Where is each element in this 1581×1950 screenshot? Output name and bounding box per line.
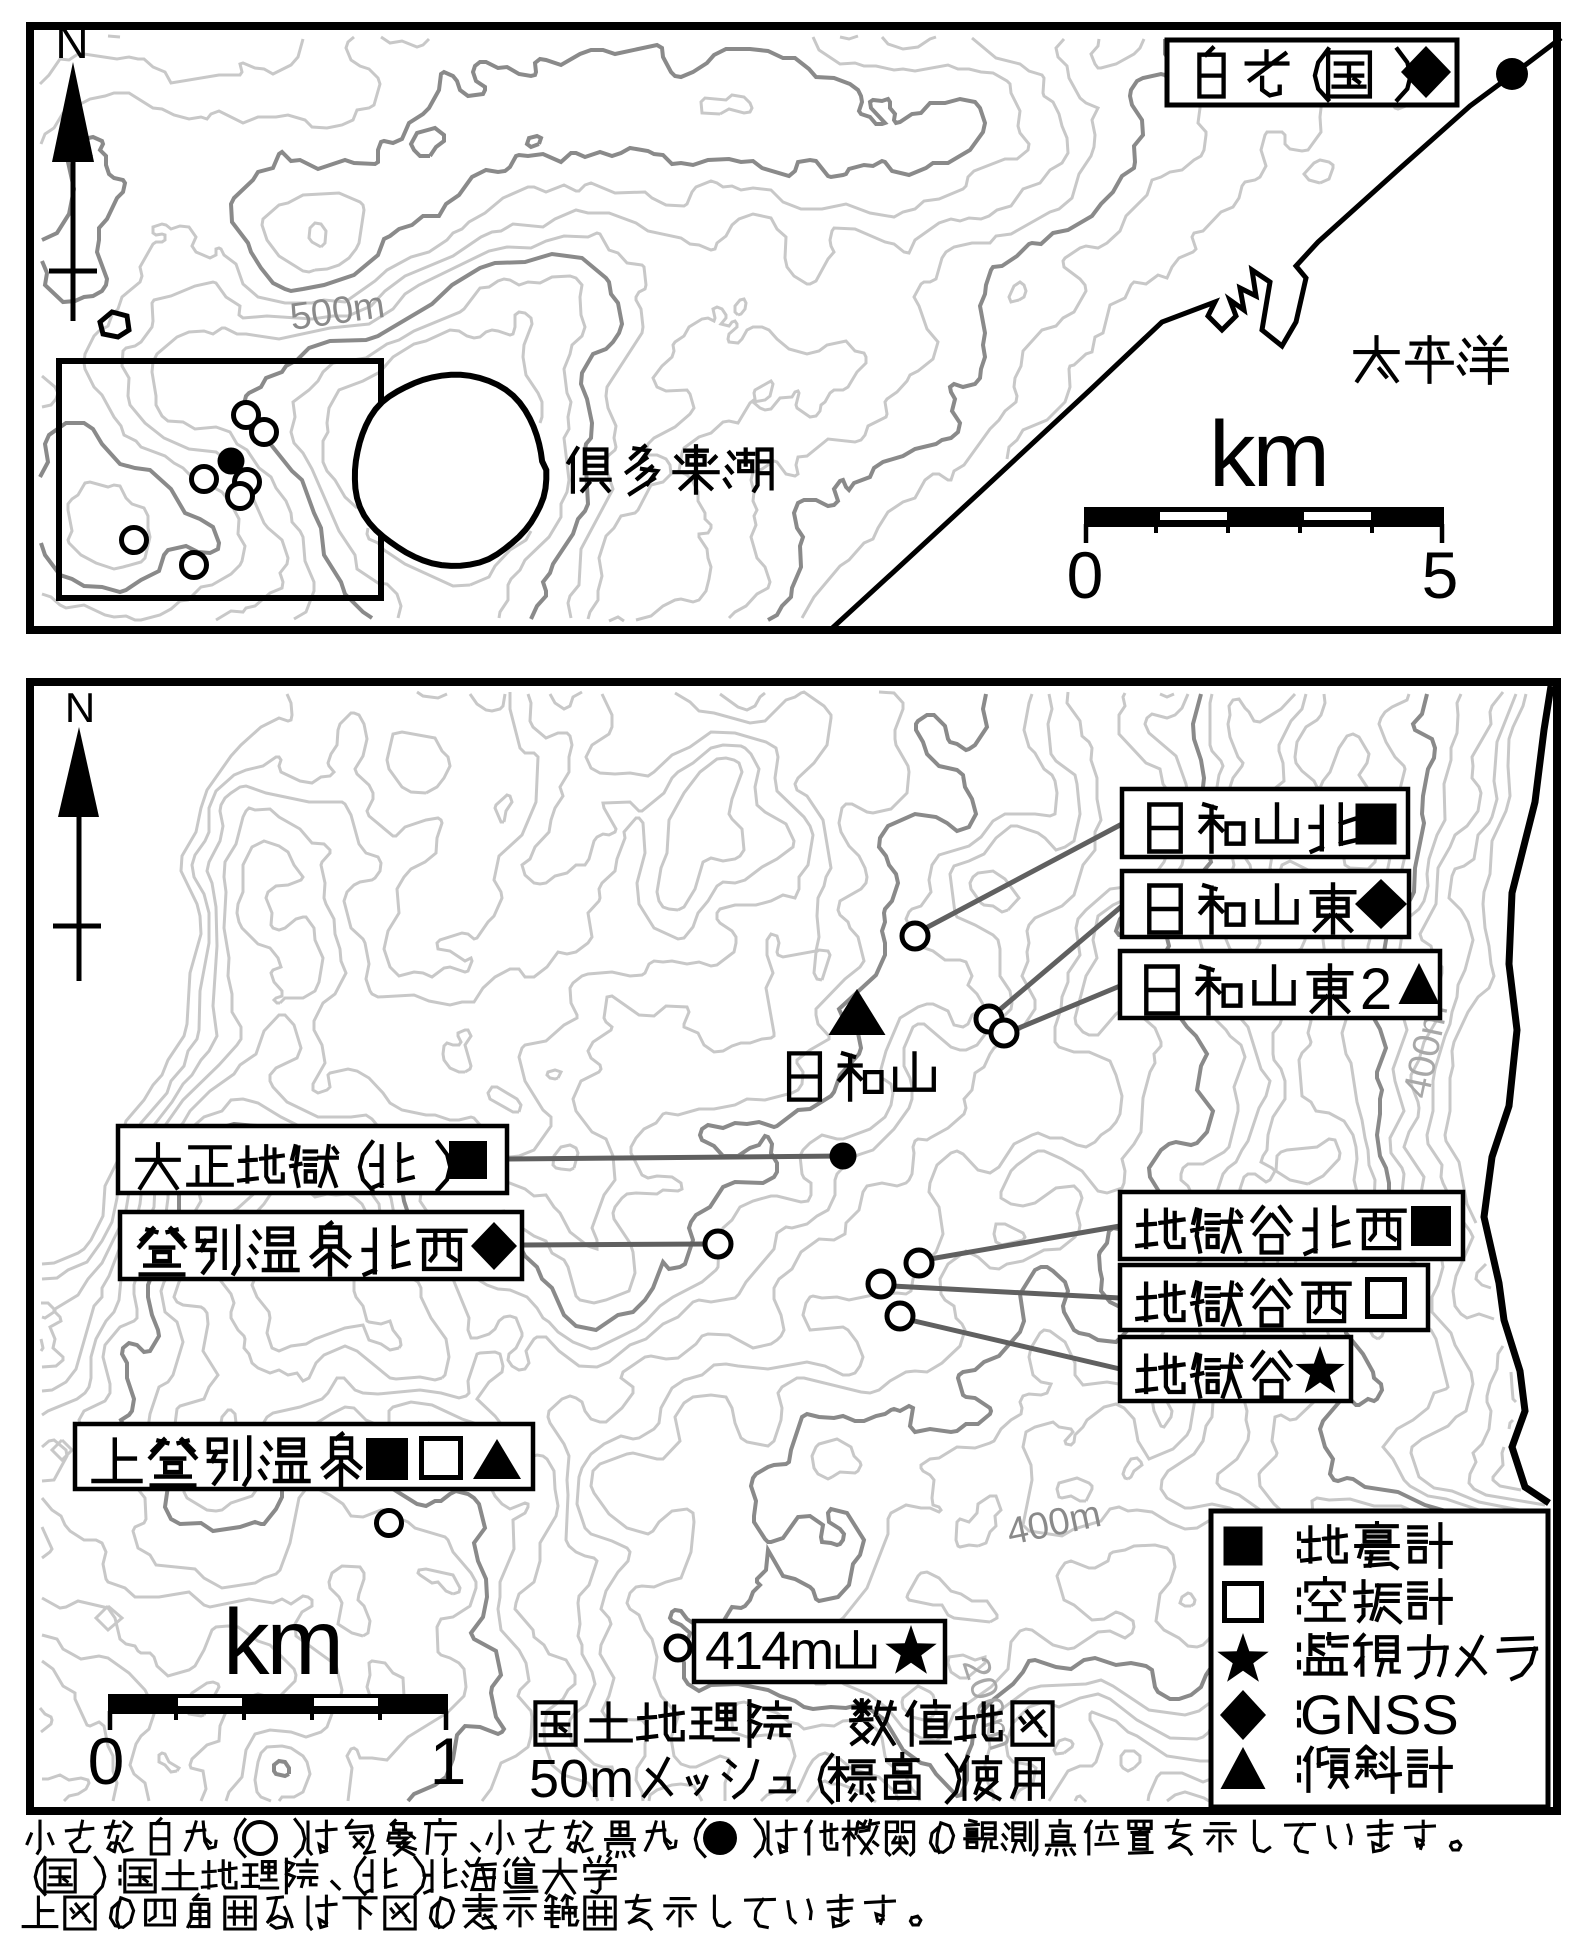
svg-text:50m: 50m	[529, 1749, 634, 1809]
svg-text:km: km	[1209, 402, 1327, 506]
svg-text:km: km	[223, 1590, 341, 1694]
svg-text:N: N	[65, 684, 95, 731]
svg-text:2: 2	[1360, 957, 1392, 1022]
svg-text:GNSS: GNSS	[1300, 1683, 1459, 1746]
svg-text:5: 5	[1422, 538, 1459, 612]
svg-text:0: 0	[1067, 538, 1104, 612]
svg-text:414m: 414m	[705, 1621, 832, 1681]
svg-text:0: 0	[88, 1724, 125, 1798]
svg-text:1: 1	[430, 1724, 467, 1798]
